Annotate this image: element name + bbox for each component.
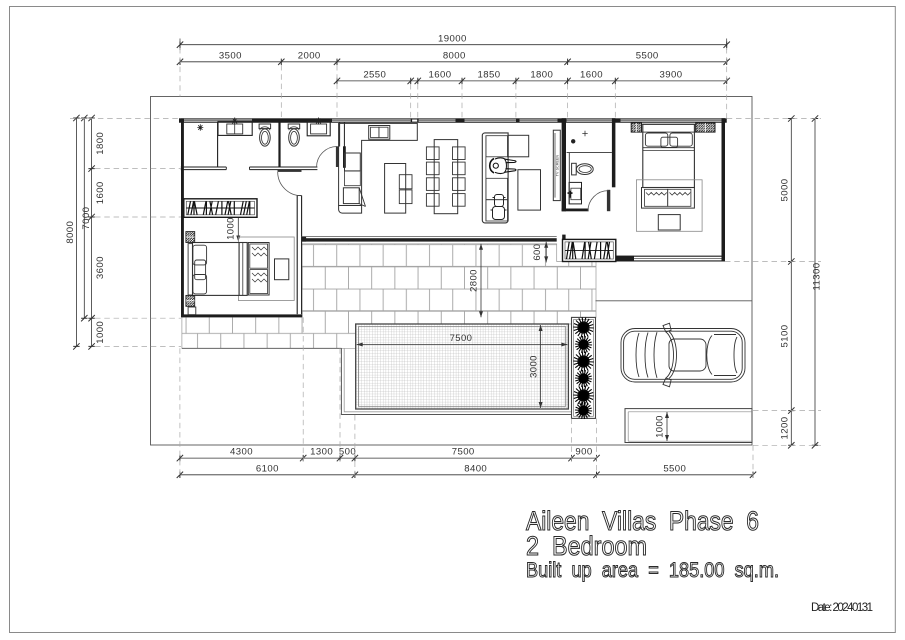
svg-text:1000: 1000 [95, 321, 106, 344]
svg-text:1000: 1000 [226, 217, 237, 240]
svg-text:1850: 1850 [478, 70, 501, 81]
svg-text:Date: 20240131: Date: 20240131 [811, 602, 873, 614]
svg-text:3000: 3000 [529, 355, 540, 378]
svg-text:2550: 2550 [363, 70, 386, 81]
svg-text:900: 900 [575, 447, 592, 458]
svg-text:6100: 6100 [256, 463, 279, 474]
svg-text:Built up area = 185.00 sq: Built up area = 185.00 sq.m. [526, 559, 779, 582]
svg-text:1600: 1600 [95, 181, 106, 204]
svg-text:600: 600 [532, 244, 543, 261]
svg-text:1600: 1600 [429, 70, 452, 81]
svg-text:1600: 1600 [580, 70, 603, 81]
svg-text:5000: 5000 [779, 179, 790, 202]
svg-text:1800: 1800 [95, 132, 106, 155]
svg-text:8000: 8000 [443, 50, 466, 61]
svg-text:8400: 8400 [464, 463, 487, 474]
svg-text:TV SCREEN: TV SCREEN [555, 154, 559, 176]
svg-text:2000: 2000 [298, 50, 321, 61]
svg-text:500: 500 [339, 447, 356, 458]
svg-text:1000: 1000 [654, 415, 665, 438]
svg-text:1200: 1200 [779, 417, 790, 440]
svg-text:3500: 3500 [219, 50, 242, 61]
svg-text:19000: 19000 [438, 33, 467, 44]
svg-text:5100: 5100 [779, 325, 790, 348]
svg-text:1800: 1800 [530, 70, 553, 81]
svg-text:8000: 8000 [65, 221, 76, 244]
svg-text:5500: 5500 [663, 463, 686, 474]
svg-text:11300: 11300 [812, 263, 823, 291]
svg-text:7500: 7500 [450, 333, 473, 344]
svg-text:4300: 4300 [230, 447, 253, 458]
svg-text:2800: 2800 [469, 269, 480, 292]
svg-text:3900: 3900 [660, 70, 683, 81]
svg-text:1300: 1300 [310, 447, 333, 458]
svg-text:3600: 3600 [95, 256, 106, 279]
svg-text:7500: 7500 [452, 447, 475, 458]
svg-text:2 Bedroom: 2 Bedroom [526, 531, 647, 561]
svg-text:5500: 5500 [636, 50, 659, 61]
